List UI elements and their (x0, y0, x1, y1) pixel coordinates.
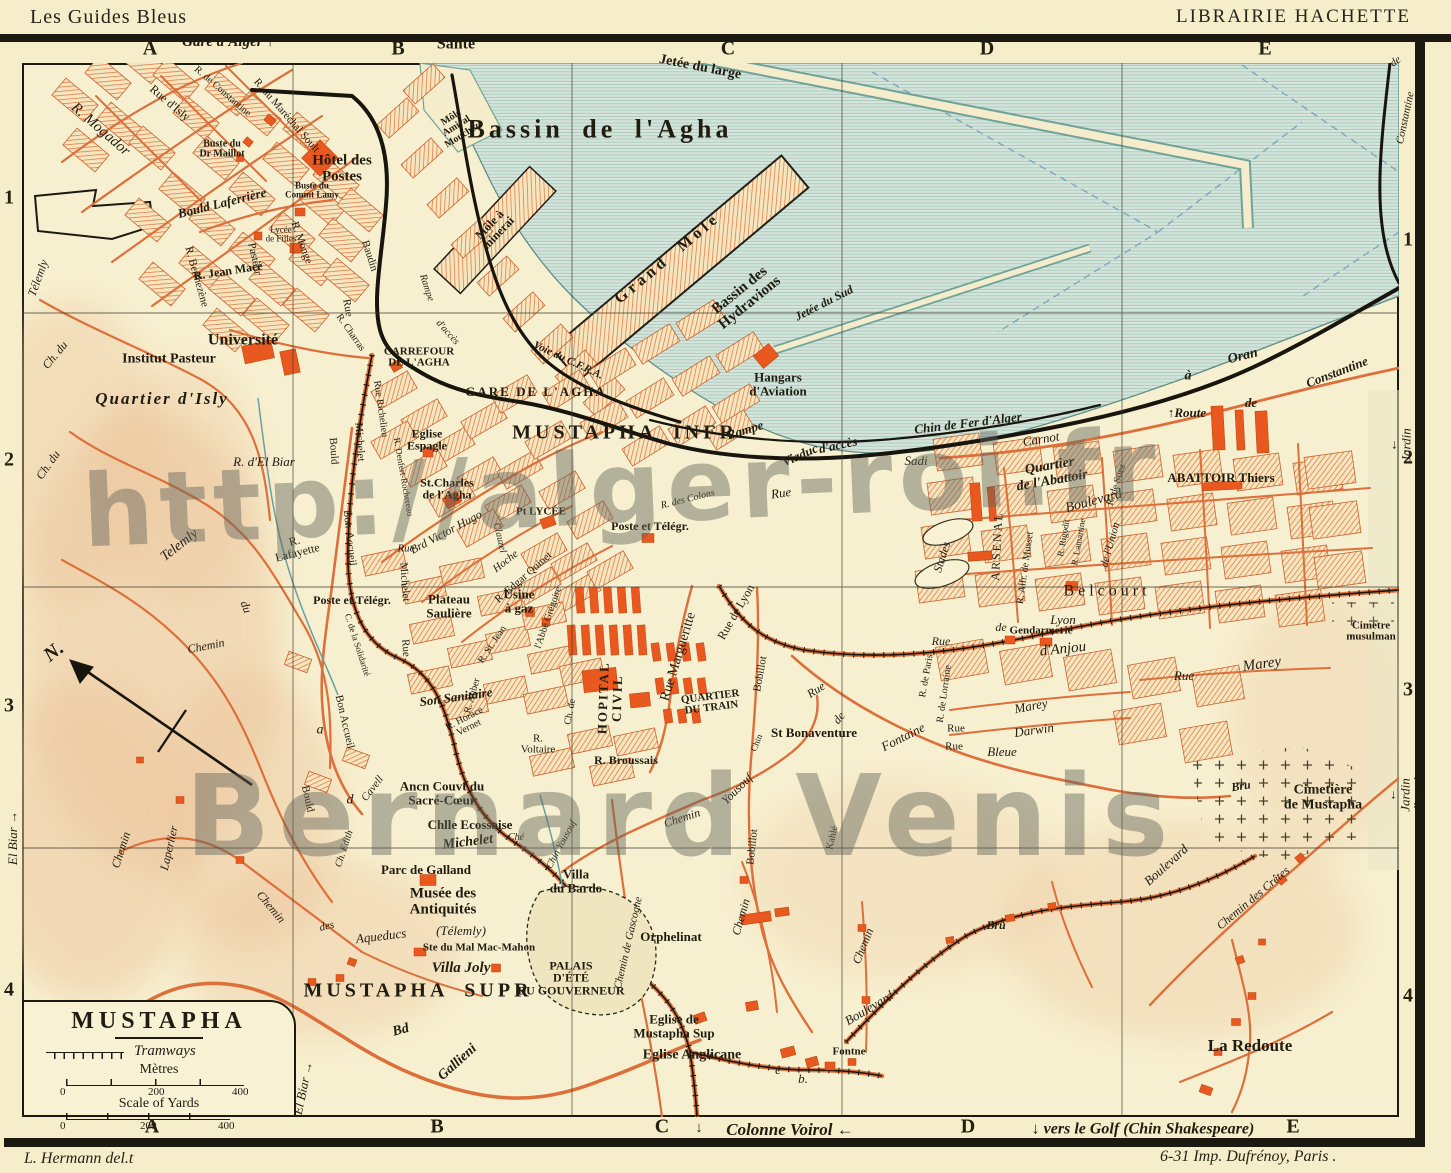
city-block (975, 569, 1025, 607)
city-block (491, 375, 537, 413)
grid-label: D (961, 1116, 975, 1139)
grid-label: B (430, 1116, 443, 1139)
bottom-border (4, 1138, 1425, 1147)
building (780, 1046, 796, 1058)
city-block (567, 726, 612, 754)
building (295, 208, 305, 216)
city-block (613, 728, 658, 756)
building (740, 877, 748, 884)
city-block (401, 138, 443, 178)
grid-label: A (143, 38, 157, 61)
city-block (589, 758, 634, 786)
building (642, 534, 654, 543)
building (575, 587, 585, 613)
city-block (193, 136, 239, 180)
building (609, 625, 619, 655)
map-page: Les Guides Bleus LIBRAIRIE HACHETTE (0, 0, 1451, 1173)
building (1235, 410, 1245, 450)
city-block (377, 98, 419, 138)
city-block (229, 172, 275, 216)
city-block (933, 433, 983, 471)
building (581, 625, 591, 655)
city-block (284, 651, 311, 672)
building (137, 757, 144, 763)
tick-400: 400 (232, 1086, 249, 1098)
city-block (1173, 449, 1223, 487)
building (1214, 1049, 1222, 1056)
tick-0: 0 (60, 1120, 66, 1132)
city-block (371, 421, 417, 459)
building (526, 608, 535, 617)
city-block (1053, 441, 1103, 479)
city-block (1035, 573, 1085, 611)
city-block (443, 692, 488, 720)
tick-200: 200 (148, 1086, 165, 1098)
building (946, 936, 955, 943)
grid-label: A (145, 1116, 159, 1139)
city-block (427, 178, 469, 218)
building (681, 643, 691, 662)
grid-label: D (980, 38, 994, 61)
city-block (927, 477, 977, 515)
city-block (1179, 721, 1232, 763)
city-block (539, 471, 585, 509)
city-block (52, 78, 98, 122)
terrain-shading (22, 300, 1399, 1040)
legend-title-underline (115, 1037, 203, 1039)
city-block (457, 509, 503, 547)
building (655, 678, 665, 695)
legend-title: MUSTAPHA (24, 1008, 294, 1035)
right-border (1415, 34, 1425, 1147)
building (542, 618, 550, 626)
building (631, 587, 641, 613)
building (1005, 636, 1015, 644)
building (1199, 1084, 1213, 1096)
building (1066, 582, 1078, 591)
city-block (1304, 451, 1356, 489)
building (745, 1001, 758, 1012)
building (805, 1056, 819, 1068)
grid-label: C (655, 1116, 669, 1139)
building (236, 857, 244, 864)
building (775, 907, 790, 917)
building (970, 483, 983, 522)
building (1048, 902, 1057, 909)
building (1005, 914, 1015, 922)
building (336, 975, 344, 982)
building (1248, 993, 1256, 1000)
grid-label: 4 (1403, 985, 1413, 1008)
city-block (409, 616, 454, 644)
building (176, 797, 184, 804)
building (492, 964, 501, 972)
building (693, 1012, 707, 1025)
grid-label: 2 (4, 449, 14, 472)
city-block (85, 63, 131, 100)
road (950, 692, 1130, 710)
city-block (319, 218, 365, 262)
grid-label: 1 (1403, 229, 1413, 252)
grid-label: 3 (4, 695, 14, 718)
building (651, 643, 661, 662)
building (1232, 1019, 1241, 1026)
building (683, 678, 693, 695)
city-block (1227, 497, 1277, 535)
city-block (523, 686, 568, 714)
city-block (1113, 703, 1166, 745)
building (617, 587, 627, 613)
map-label: ↓ (695, 1121, 703, 1137)
map-canvas (22, 63, 1399, 1117)
city-block (263, 142, 309, 186)
building (666, 643, 676, 662)
building (691, 709, 701, 724)
metres-label: Mètres (24, 1062, 294, 1078)
tramway-symbol (46, 1052, 124, 1059)
building (1255, 411, 1269, 454)
grid-label: B (391, 38, 404, 61)
building (582, 667, 618, 692)
building (697, 678, 707, 695)
city-block (1041, 529, 1091, 567)
building (677, 709, 687, 724)
city-block (485, 626, 530, 654)
publisher-series: Les Guides Bleus (30, 6, 187, 29)
legend-box: MUSTAPHA Tramways Mètres 0 200 400 Scale… (22, 1000, 296, 1117)
grid-label: 2 (1403, 447, 1413, 470)
city-block (173, 96, 219, 140)
building (1211, 406, 1225, 451)
printer-credit: 6-31 Imp. Dufrénoy, Paris . (1160, 1148, 1336, 1166)
building (595, 625, 605, 655)
building (637, 625, 647, 655)
building (968, 551, 993, 562)
tick-400: 400 (218, 1120, 235, 1132)
city-block (1063, 649, 1116, 691)
building (308, 979, 316, 986)
city-block (1113, 445, 1163, 483)
grid-label: 3 (1403, 679, 1413, 702)
city-block (529, 748, 574, 776)
building (629, 692, 650, 708)
tramway-label: Tramways (134, 1043, 196, 1060)
map-label: ↓ vers le Golf (Chin Shakespeare) (1032, 1122, 1255, 1139)
building (243, 137, 254, 148)
city-block (1047, 485, 1097, 523)
cemetery-musulman (1332, 602, 1394, 638)
publisher-name: LIBRAIRIE HACHETTE (1176, 6, 1411, 28)
city-block (1167, 493, 1217, 531)
city-block (999, 643, 1052, 685)
yards-label: Scale of Yards (24, 1096, 294, 1112)
city-block (1221, 541, 1271, 579)
building (414, 948, 426, 956)
building (254, 232, 262, 240)
building (420, 875, 436, 886)
building (241, 340, 274, 364)
building (603, 587, 613, 613)
city-block (361, 548, 406, 576)
city-block (993, 437, 1043, 475)
building (663, 709, 673, 724)
building (1259, 939, 1266, 945)
building (858, 925, 866, 932)
building (696, 643, 706, 662)
building (848, 1059, 856, 1066)
city-block (342, 747, 369, 768)
grid-label: E (1286, 1116, 1299, 1139)
city-block (1095, 577, 1145, 615)
grid-label: C (721, 38, 735, 61)
city-block (1161, 537, 1211, 575)
building (280, 349, 301, 376)
road (950, 718, 1130, 735)
city-block (483, 676, 528, 704)
building (237, 155, 244, 162)
map-label: El Biar → (6, 811, 20, 865)
grid-label: E (1258, 38, 1271, 61)
building (423, 447, 433, 457)
city-block (567, 501, 613, 539)
building (290, 243, 302, 253)
map-label: Colonne Voirol ← (726, 1121, 854, 1139)
cartographer-credit: L. Hermann del.t (24, 1150, 133, 1168)
building (540, 515, 557, 529)
city-block (447, 640, 492, 668)
grid-label: 4 (4, 979, 14, 1002)
governor-park (527, 886, 656, 1014)
building (1040, 638, 1052, 646)
grid-label: 1 (4, 187, 14, 210)
city-block (525, 421, 571, 459)
building (862, 997, 870, 1004)
city-block (371, 371, 417, 409)
city-block (1309, 501, 1361, 539)
metres-ticks: 0 200 400 (60, 1086, 250, 1098)
tick-0: 0 (60, 1086, 66, 1098)
city-block (1314, 551, 1366, 589)
building (623, 625, 633, 655)
building (825, 1062, 835, 1070)
building (589, 587, 599, 613)
metres-scalebar (66, 1079, 244, 1086)
